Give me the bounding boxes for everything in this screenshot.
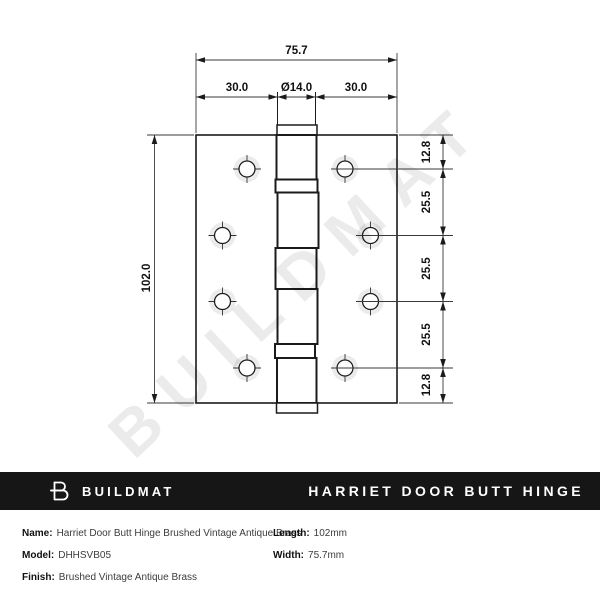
spec-length-label: Length: <box>273 528 310 539</box>
spec-width: Width:75.7mm <box>273 545 347 567</box>
dim-chain-2: 25.5 <box>421 190 433 213</box>
footer-brand-bar: BUILDMAT HARRIET DOOR BUTT HINGE <box>0 472 600 510</box>
spec-finish-label: Finish: <box>22 572 55 583</box>
brand-logo: BUILDMAT <box>46 480 175 502</box>
barrel-knuckles <box>275 125 319 413</box>
specs-left-column: Name:Harriet Door Butt Hinge Brushed Vin… <box>22 523 302 589</box>
dim-overall-width: 75.7 <box>285 45 307 57</box>
hinge-technical-drawing: 75.7 30.0 Ø14.0 30.0 102.0 12.8 25.5 25.… <box>0 0 600 470</box>
spec-finish: Finish:Brushed Vintage Antique Brass <box>22 567 302 589</box>
product-title: HARRIET DOOR BUTT HINGE <box>308 483 584 499</box>
brand-name: BUILDMAT <box>82 484 175 499</box>
spec-width-value: 75.7mm <box>308 550 344 561</box>
spec-length-value: 102mm <box>314 528 347 539</box>
spec-name-label: Name: <box>22 528 53 539</box>
hinge-body <box>196 92 397 413</box>
dim-chain-1: 12.8 <box>421 140 433 163</box>
dim-chain-5: 12.8 <box>421 373 433 396</box>
dim-pin-diameter: Ø14.0 <box>281 82 312 94</box>
dim-right-span: 30.0 <box>345 82 367 94</box>
spec-model-value: DHHSVB05 <box>58 550 111 561</box>
specs-right-column: Length:102mm Width:75.7mm <box>273 523 347 567</box>
spec-length: Length:102mm <box>273 523 347 545</box>
spec-model-label: Model: <box>22 550 54 561</box>
dim-height: 102.0 <box>141 264 153 293</box>
dim-chain-3: 25.5 <box>421 257 433 280</box>
spec-finish-value: Brushed Vintage Antique Brass <box>59 572 197 583</box>
spec-name: Name:Harriet Door Butt Hinge Brushed Vin… <box>22 523 302 545</box>
dim-left-span: 30.0 <box>226 82 248 94</box>
dim-chain-4: 25.5 <box>421 323 433 346</box>
spec-model: Model:DHHSVB05 <box>22 545 302 567</box>
spec-width-label: Width: <box>273 550 304 561</box>
buildmat-logo-icon <box>46 480 73 502</box>
spec-name-value: Harriet Door Butt Hinge Brushed Vintage … <box>57 528 302 539</box>
